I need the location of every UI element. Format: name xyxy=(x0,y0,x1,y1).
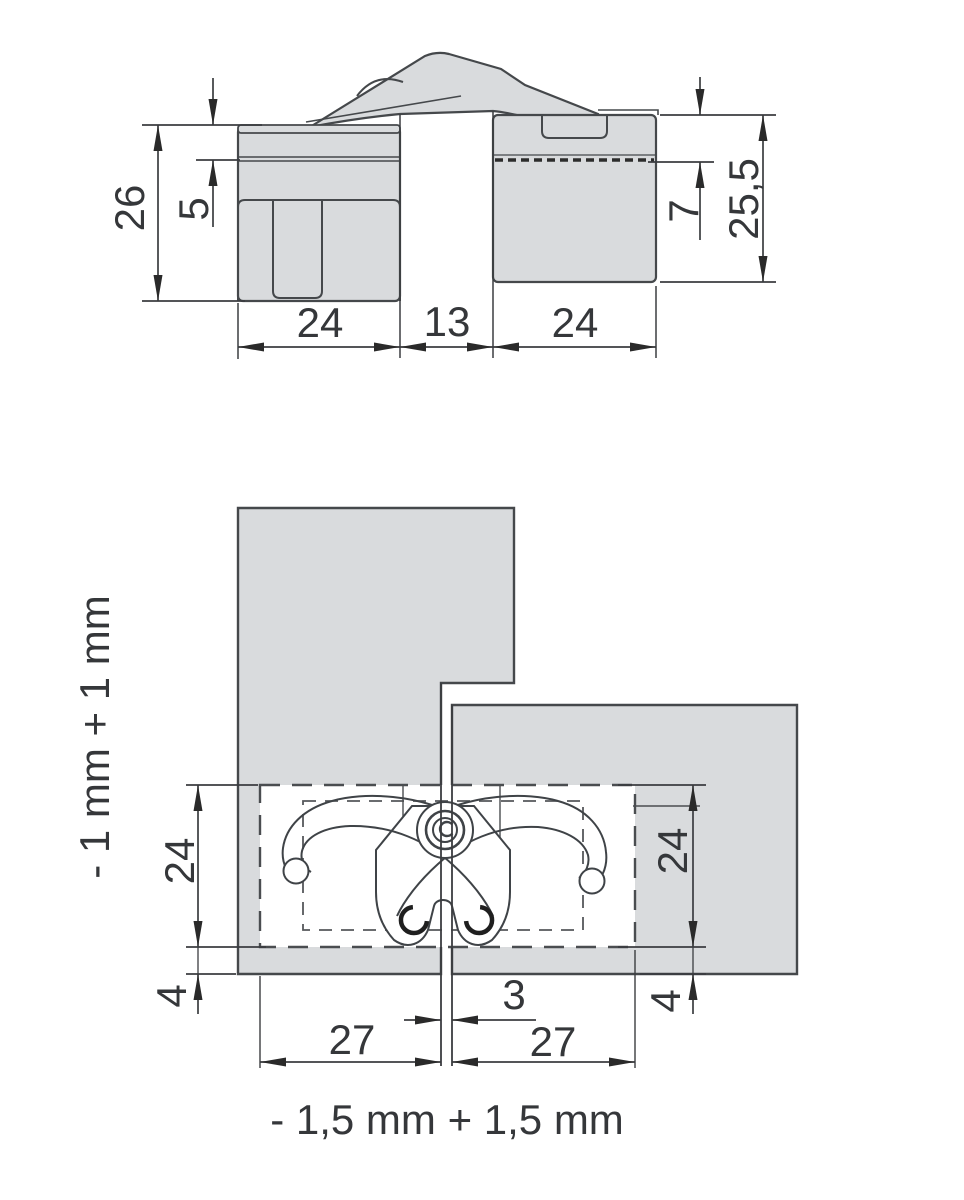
left-body xyxy=(238,127,400,301)
left-body-top-plate xyxy=(238,125,400,133)
installation-view xyxy=(186,508,797,1068)
vertical-adjustment-label: - 1 mm + 1 mm xyxy=(74,595,116,879)
dim-label-right-width: 24 xyxy=(552,302,599,344)
technical-drawing-page: 26 5 7 25,5 24 13 24 - 1 mm + 1 mm 24 24… xyxy=(0,0,964,1200)
dim-label-right-inset: 7 xyxy=(663,199,705,222)
right-body xyxy=(493,115,656,282)
hinge-technical-drawing xyxy=(0,0,964,1200)
cross-section-view xyxy=(238,53,658,301)
left-arm-pivot xyxy=(284,859,309,884)
right-arm-pivot xyxy=(580,869,605,894)
dim-label-gap-width: 13 xyxy=(424,301,471,343)
horizontal-adjustment-label: - 1,5 mm + 1,5 mm xyxy=(270,1099,624,1141)
dim-label-left-width: 24 xyxy=(297,302,344,344)
dim-label-edge-offset-right: 4 xyxy=(645,989,687,1012)
dim-label-cutout-height-right: 24 xyxy=(652,828,694,875)
dim-label-cap-depth: 5 xyxy=(173,197,215,220)
dim-label-cutout-height-left: 24 xyxy=(159,838,201,885)
dim-label-right-height: 25,5 xyxy=(723,158,765,240)
dim-label-edge-offset-left: 4 xyxy=(151,984,193,1007)
dim-label-door-gap: 3 xyxy=(502,974,525,1016)
dim-label-cutout-width-left: 27 xyxy=(329,1019,376,1061)
dim-label-cutout-width-right: 27 xyxy=(530,1021,577,1063)
dim-label-left-height: 26 xyxy=(109,185,151,232)
